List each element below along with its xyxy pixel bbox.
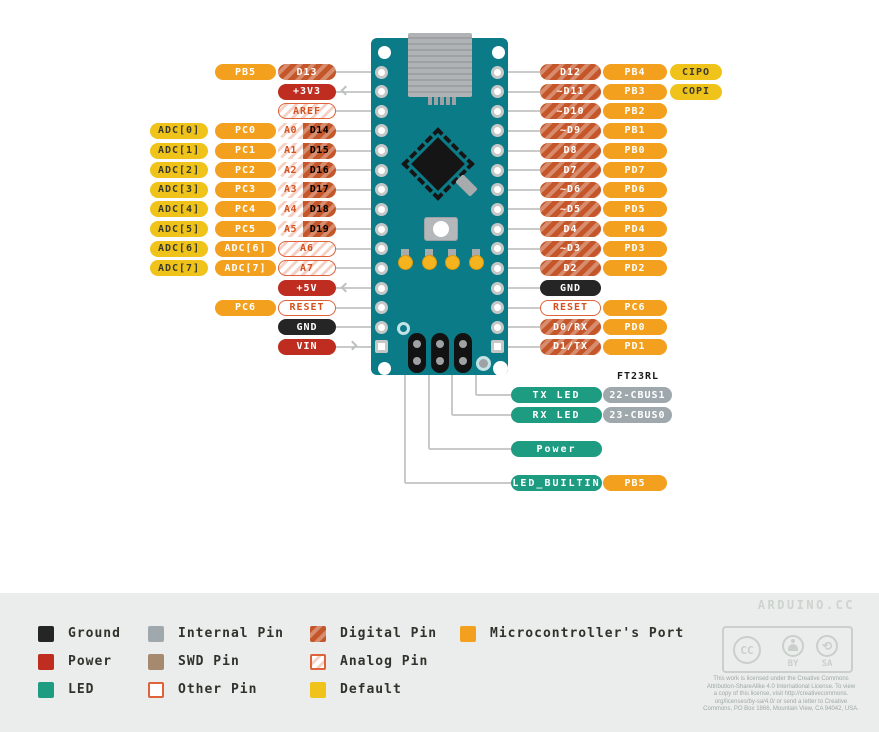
usb-pin-icon	[446, 97, 450, 105]
mcu-port-label: PC0	[215, 123, 276, 139]
pin-label: ~D3	[540, 241, 601, 257]
mcu-port-label: PD4	[603, 221, 667, 237]
pin-hole	[375, 262, 388, 275]
led-callout-label: LED_BUILTIN	[511, 475, 602, 491]
pin-label: ~D6	[540, 182, 601, 198]
legend-swatch-other	[148, 682, 164, 698]
icsp-header-icon	[431, 333, 449, 373]
analog-pin-label: A0	[278, 123, 303, 139]
pin-label: D1/TX	[540, 339, 601, 355]
mcu-port-label: PD5	[603, 201, 667, 217]
pin-label: A6	[278, 241, 336, 257]
legend-label: Other Pin	[178, 682, 257, 697]
mcu-port-label: PC3	[215, 182, 276, 198]
pin-hole	[491, 203, 504, 216]
adc-channel-label: ADC[3]	[150, 182, 208, 198]
led-callout-label: TX LED	[511, 387, 602, 403]
pin-label-combo: A2D16	[278, 162, 336, 178]
pin-hole	[375, 183, 388, 196]
mounting-hole-icon	[493, 361, 508, 376]
led-callout-extra-label: PB5	[603, 475, 667, 491]
pin-hole	[491, 340, 504, 353]
pin-label: GND	[540, 280, 601, 296]
legend-label: SWD Pin	[178, 654, 240, 669]
pin-hole	[375, 340, 388, 353]
pin-label-combo: A3D17	[278, 182, 336, 198]
mounting-hole-icon	[492, 46, 505, 59]
analog-pin-label: A1	[278, 143, 303, 159]
by-person-icon	[782, 635, 804, 657]
pin-hole	[375, 85, 388, 98]
legend-swatch-default	[310, 682, 326, 698]
pin-hole	[375, 164, 388, 177]
mcu-port-label: ADC[7]	[215, 260, 276, 276]
mcu-port-label: PD3	[603, 241, 667, 257]
mcu-port-label: PB4	[603, 64, 667, 80]
legend-label: Ground	[68, 626, 121, 641]
legend-label: LED	[68, 682, 94, 697]
default-function-label: COPI	[670, 84, 722, 100]
pin-label: D13	[278, 64, 336, 80]
pin-hole	[491, 105, 504, 118]
default-function-label: CIPO	[670, 64, 722, 80]
adc-channel-label: ADC[7]	[150, 260, 208, 276]
by-label: BY	[779, 659, 807, 669]
pin-hole	[375, 105, 388, 118]
connector-line	[405, 482, 511, 484]
mcu-port-label: PD7	[603, 162, 667, 178]
pin-label-combo: A4D18	[278, 201, 336, 217]
mcu-port-label: PC1	[215, 143, 276, 159]
usb-pin-icon	[434, 97, 438, 105]
icsp-hole-icon	[459, 340, 467, 348]
led-icon	[445, 255, 460, 270]
pin-label: ~D9	[540, 123, 601, 139]
arrow-out-icon	[341, 282, 351, 292]
pin-hole	[375, 203, 388, 216]
usb-pin-icon	[440, 97, 444, 105]
person-head-icon	[791, 639, 795, 643]
led-icon	[469, 255, 484, 270]
icsp-hole-icon	[413, 340, 421, 348]
legend-label: Power	[68, 654, 112, 669]
analog-pin-label: A2	[278, 162, 303, 178]
led-callout-label: RX LED	[511, 407, 602, 423]
pin-label: RESET	[278, 300, 336, 316]
pin-hole	[491, 66, 504, 79]
mcu-port-label: PD6	[603, 182, 667, 198]
adc-channel-label: ADC[5]	[150, 221, 208, 237]
digital-pin-label: D15	[303, 143, 336, 159]
legend-label: Default	[340, 682, 402, 697]
mcu-port-label: PD1	[603, 339, 667, 355]
sa-arrow-icon: ⟲	[816, 635, 838, 657]
mcu-port-label: PB1	[603, 123, 667, 139]
pin-label: GND	[278, 319, 336, 335]
license-line: a copy of this license, visit http://cre…	[686, 691, 876, 699]
analog-pin-label: A4	[278, 201, 303, 217]
pin-label: AREF	[278, 103, 336, 119]
pin-hole	[375, 66, 388, 79]
digital-pin-label: D14	[303, 123, 336, 139]
icsp-hole-icon	[436, 340, 444, 348]
mcu-port-label: PB3	[603, 84, 667, 100]
pin-hole	[375, 321, 388, 334]
icsp-hole-icon	[413, 357, 421, 365]
sa-label: SA	[813, 659, 841, 669]
led-callout-label: Power	[511, 441, 602, 457]
arrow-out-icon	[341, 86, 351, 96]
led-icon	[422, 255, 437, 270]
arduino-nano-pinout-diagram: PB5D13+3V3AREFADC[0]PC0A0D14ADC[1]PC1A1D…	[0, 0, 879, 732]
usb-connector-icon	[408, 33, 472, 97]
creative-commons-badge: CC ⟲ BY SA	[722, 626, 853, 673]
legend-label: Analog Pin	[340, 654, 428, 669]
pin-label: ~D10	[540, 103, 601, 119]
mcu-port-label: PD0	[603, 319, 667, 335]
legend-label: Microcontroller's Port	[490, 626, 684, 641]
pin-label: D7	[540, 162, 601, 178]
adc-channel-label: ADC[6]	[150, 241, 208, 257]
pin-hole	[491, 262, 504, 275]
pin-label: D0/RX	[540, 319, 601, 335]
legend-swatch-analog	[310, 654, 326, 670]
mcu-port-label: ADC[6]	[215, 241, 276, 257]
pin-label: D8	[540, 143, 601, 159]
digital-pin-label: D19	[303, 221, 336, 237]
mcu-port-label: PB2	[603, 103, 667, 119]
digital-pin-label: D18	[303, 201, 336, 217]
pin-hole	[491, 85, 504, 98]
digital-pin-label: D16	[303, 162, 336, 178]
legend-label: Digital Pin	[340, 626, 437, 641]
pin-hole	[375, 301, 388, 314]
pin-label: D2	[540, 260, 601, 276]
usb-pin-icon	[428, 97, 432, 105]
mcu-port-label: PC6	[215, 300, 276, 316]
cc-icon: CC	[733, 636, 761, 664]
pin-hole	[491, 321, 504, 334]
pin-hole	[491, 124, 504, 137]
adc-channel-label: ADC[1]	[150, 143, 208, 159]
pin-label-combo: A5D19	[278, 221, 336, 237]
icsp-header-icon	[454, 333, 472, 373]
pin-label: +3V3	[278, 84, 336, 100]
adc-channel-label: ADC[2]	[150, 162, 208, 178]
pin-hole	[375, 124, 388, 137]
legend-swatch-led	[38, 682, 54, 698]
ftdi-chip-label: FT23RL	[600, 371, 676, 382]
pin-hole	[491, 223, 504, 236]
legend-swatch-swd	[148, 654, 164, 670]
mounting-hole-icon	[378, 362, 391, 375]
mcu-port-label: PB0	[603, 143, 667, 159]
license-line: Attribution-ShareAlike 4.0 International…	[686, 684, 876, 692]
mounting-hole-icon	[378, 46, 391, 59]
adc-channel-label: ADC[0]	[150, 123, 208, 139]
mcu-port-label: PD2	[603, 260, 667, 276]
mcu-port-label: PC5	[215, 221, 276, 237]
license-line: org/licenses/by-sa/4.0/ or send a letter…	[686, 699, 876, 707]
mcu-port-label: PC2	[215, 162, 276, 178]
via-icon	[397, 322, 410, 335]
pin-hole	[491, 242, 504, 255]
pin-label: +5V	[278, 280, 336, 296]
pin-hole	[491, 183, 504, 196]
pin-hole	[375, 282, 388, 295]
legend-swatch-port	[460, 626, 476, 642]
license-text: This work is licensed under the Creative…	[686, 676, 876, 714]
usb-pin-icon	[452, 97, 456, 105]
pin-label: RESET	[540, 300, 601, 316]
pin-hole	[375, 242, 388, 255]
icsp-header-icon	[408, 333, 426, 373]
reset-button-icon	[424, 217, 458, 241]
led-callout-extra-label: 22-CBUS1	[603, 387, 672, 403]
license-line: Commons, PO Box 1866, Mountain View, CA …	[686, 706, 876, 714]
person-body-icon	[788, 644, 798, 651]
mcu-port-label: PB5	[215, 64, 276, 80]
adc-channel-label: ADC[4]	[150, 201, 208, 217]
pin-hole	[375, 144, 388, 157]
pin-label-combo: A1D15	[278, 143, 336, 159]
connector-line	[476, 394, 511, 396]
analog-pin-label: A3	[278, 182, 303, 198]
legend-swatch-ground	[38, 626, 54, 642]
via-icon	[476, 356, 491, 371]
pin-hole	[491, 144, 504, 157]
digital-pin-label: D17	[303, 182, 336, 198]
legend-label: Internal Pin	[178, 626, 284, 641]
legend-swatch-power	[38, 654, 54, 670]
legend-swatch-digital	[310, 626, 326, 642]
connector-line	[452, 414, 511, 416]
pin-hole	[375, 223, 388, 236]
led-icon	[398, 255, 413, 270]
pin-label: ~D5	[540, 201, 601, 217]
arrow-in-icon	[348, 341, 358, 351]
icsp-hole-icon	[459, 357, 467, 365]
pin-label: ~D11	[540, 84, 601, 100]
icsp-hole-icon	[436, 357, 444, 365]
pin-hole	[491, 164, 504, 177]
pin-label: VIN	[278, 339, 336, 355]
legend-swatch-internal	[148, 626, 164, 642]
mcu-port-label: PC4	[215, 201, 276, 217]
license-line: This work is licensed under the Creative…	[686, 676, 876, 684]
arduino-cc-logo-text: ARDUINO.CC	[695, 598, 855, 612]
pin-label-combo: A0D14	[278, 123, 336, 139]
pin-hole	[491, 301, 504, 314]
mcu-port-label: PC6	[603, 300, 667, 316]
pin-label: D12	[540, 64, 601, 80]
led-callout-extra-label: 23-CBUS0	[603, 407, 672, 423]
pin-label: A7	[278, 260, 336, 276]
analog-pin-label: A5	[278, 221, 303, 237]
pin-label: D4	[540, 221, 601, 237]
connector-line	[429, 448, 511, 450]
pin-hole	[491, 282, 504, 295]
